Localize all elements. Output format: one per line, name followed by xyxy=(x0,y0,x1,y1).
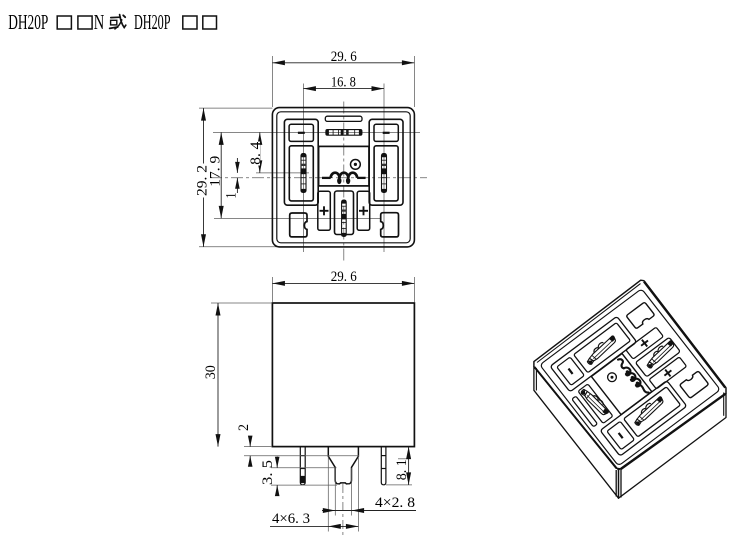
svg-text:16. 8: 16. 8 xyxy=(331,74,356,90)
svg-text:1: 1 xyxy=(223,193,239,199)
svg-text:2: 2 xyxy=(236,424,252,431)
svg-text:29. 6: 29. 6 xyxy=(331,269,357,285)
svg-text:17. 9: 17. 9 xyxy=(208,156,224,187)
svg-text:4×2. 8: 4×2. 8 xyxy=(375,495,415,511)
svg-text:4×6. 3: 4×6. 3 xyxy=(272,511,310,527)
svg-text:8. 1: 8. 1 xyxy=(394,459,410,480)
svg-text:29. 6: 29. 6 xyxy=(331,49,357,65)
svg-text:DH20P: DH20P xyxy=(8,10,48,34)
svg-text:DH20P: DH20P xyxy=(134,10,171,34)
svg-text:30: 30 xyxy=(203,365,219,379)
svg-text:3. 5: 3. 5 xyxy=(260,460,276,485)
svg-text:N: N xyxy=(94,10,105,34)
svg-text:8. 4: 8. 4 xyxy=(248,141,264,165)
